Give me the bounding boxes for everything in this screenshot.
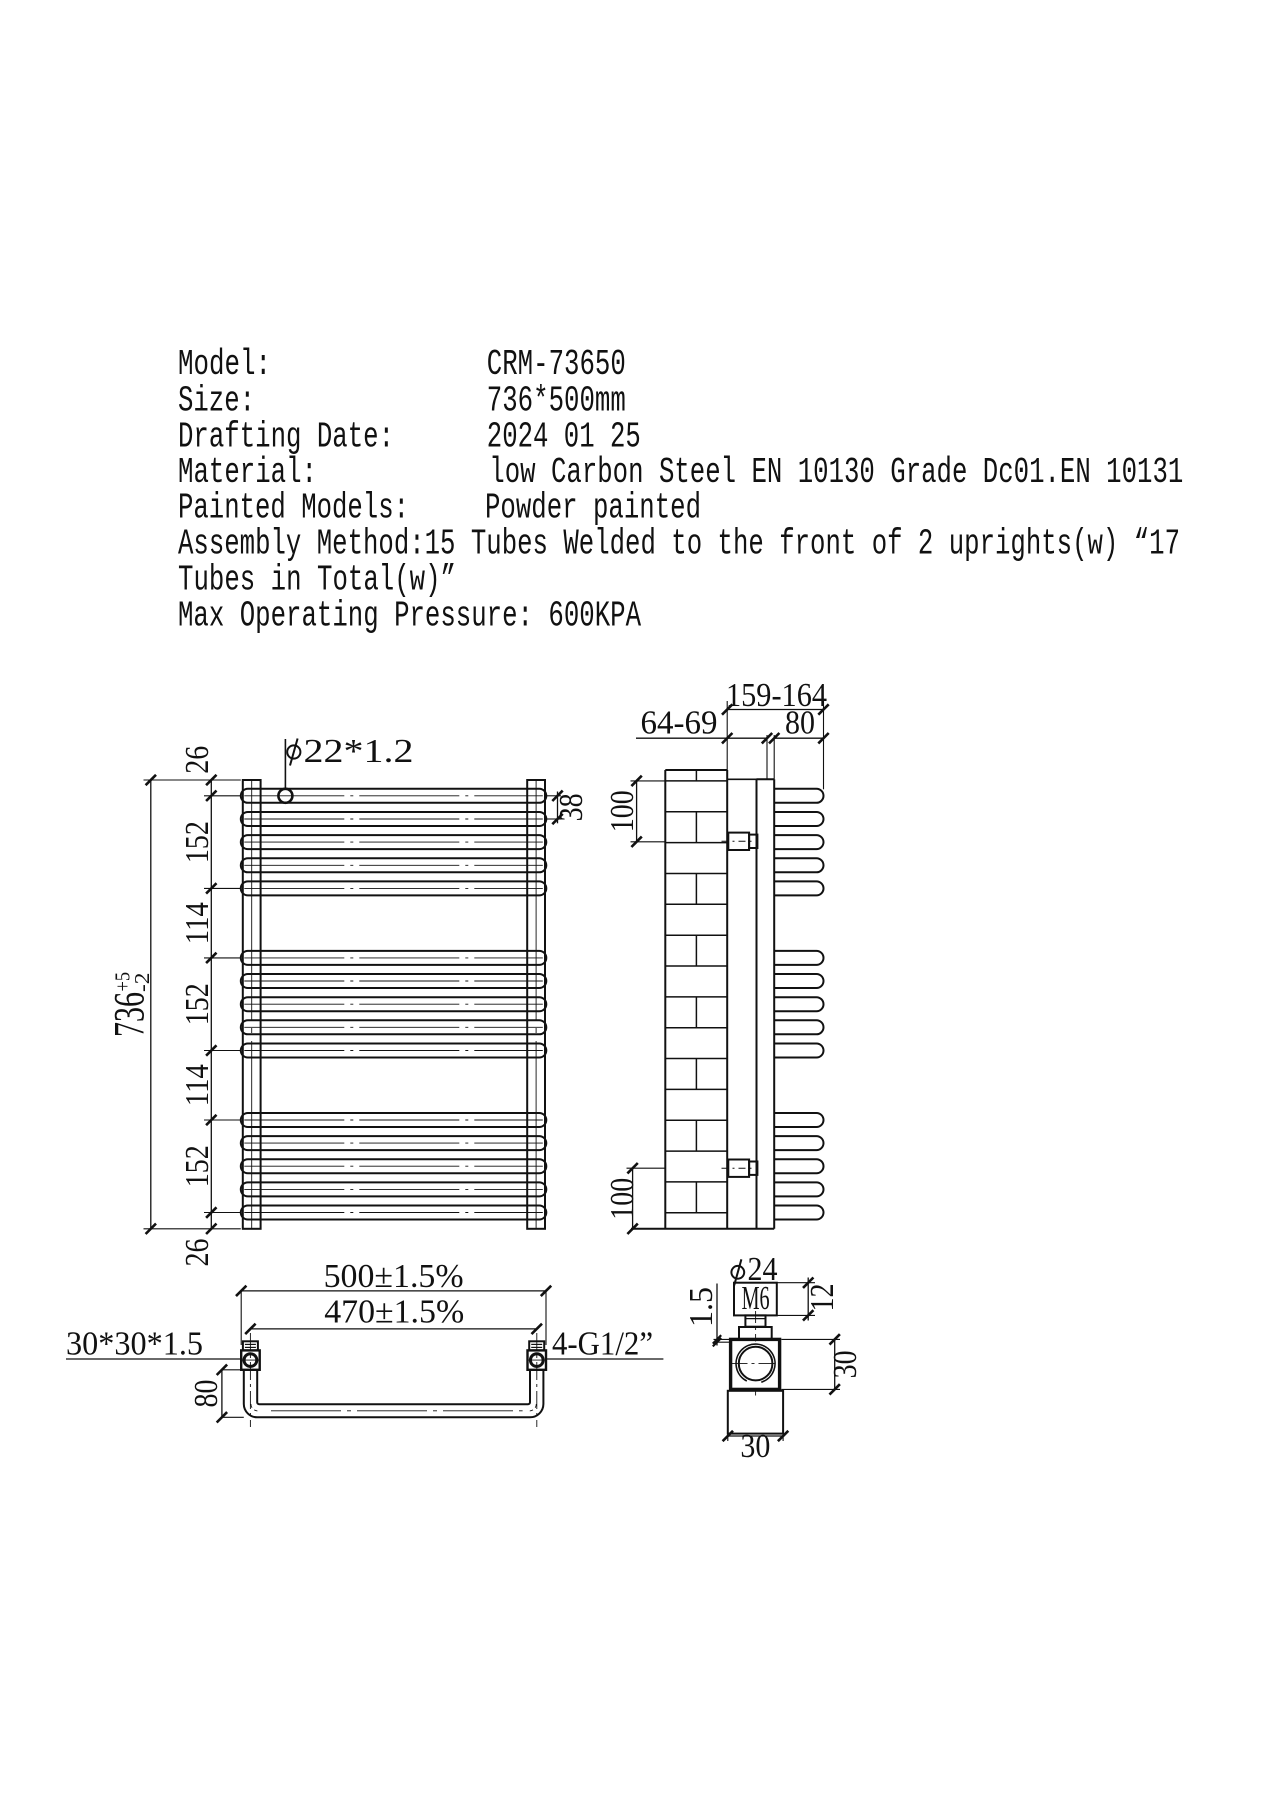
svg-text:Size:: Size: bbox=[178, 380, 255, 421]
svg-text:CRM-73650: CRM-73650 bbox=[487, 344, 626, 385]
svg-text:736*500mm: 736*500mm bbox=[487, 380, 626, 421]
svg-text:64-69: 64-69 bbox=[641, 705, 718, 742]
svg-text:80: 80 bbox=[188, 1380, 225, 1408]
svg-text:26: 26 bbox=[179, 746, 216, 774]
svg-text:114: 114 bbox=[179, 902, 216, 944]
svg-text:100: 100 bbox=[604, 1178, 641, 1220]
svg-text:Powder painted: Powder painted bbox=[485, 487, 701, 528]
svg-text:1.5: 1.5 bbox=[683, 1287, 720, 1327]
svg-text:470±1.5%: 470±1.5% bbox=[324, 1293, 464, 1330]
svg-text:30: 30 bbox=[827, 1350, 864, 1378]
svg-text:30: 30 bbox=[740, 1428, 770, 1465]
svg-text:152: 152 bbox=[179, 821, 216, 863]
svg-text:30*30*1.5: 30*30*1.5 bbox=[66, 1325, 203, 1362]
svg-text:22*1.2: 22*1.2 bbox=[304, 733, 414, 770]
svg-text:Painted Models:: Painted Models: bbox=[178, 487, 409, 528]
svg-text:38: 38 bbox=[553, 793, 590, 821]
svg-text:152: 152 bbox=[179, 983, 216, 1025]
svg-text:Assembly Method:15 Tubes Welde: Assembly Method:15 Tubes Welded to the f… bbox=[178, 523, 1180, 564]
svg-text:80: 80 bbox=[785, 705, 815, 742]
svg-text:736+5-2: 736+5-2 bbox=[107, 972, 154, 1037]
svg-text:Max Operating Pressure: 600KPA: Max Operating Pressure: 600KPA bbox=[178, 596, 641, 637]
svg-text:26: 26 bbox=[179, 1239, 216, 1267]
svg-text:152: 152 bbox=[179, 1145, 216, 1187]
svg-text:Tubes in Total(w)”: Tubes in Total(w)” bbox=[178, 559, 456, 600]
svg-text:Model:: Model: bbox=[178, 344, 271, 385]
svg-text:114: 114 bbox=[179, 1064, 216, 1106]
svg-text:500±1.5%: 500±1.5% bbox=[324, 1258, 464, 1295]
svg-text:12: 12 bbox=[804, 1284, 841, 1312]
svg-text:100: 100 bbox=[604, 790, 641, 832]
svg-text:4-G1/2”: 4-G1/2” bbox=[552, 1325, 653, 1362]
